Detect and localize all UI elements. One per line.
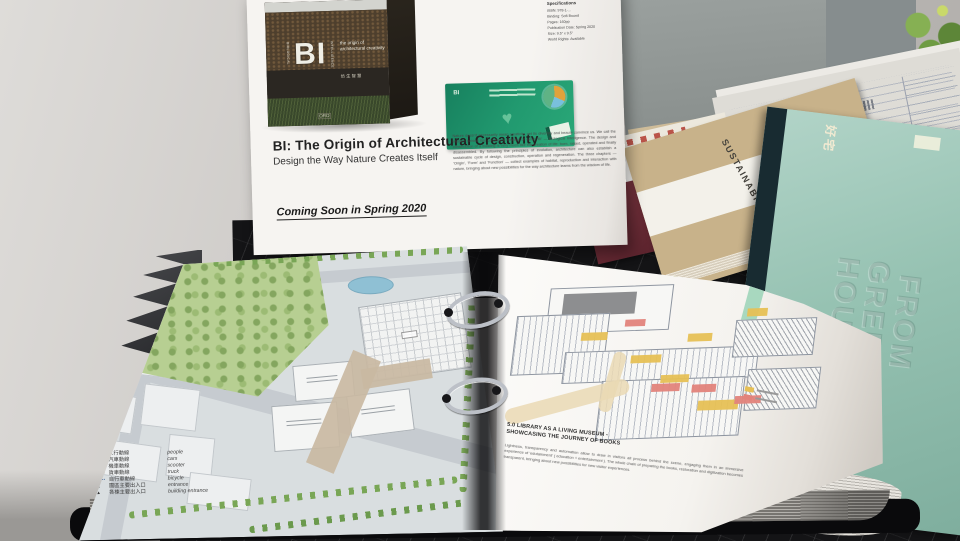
route-red (691, 384, 716, 393)
route-yellow (687, 333, 712, 342)
book-3d-mockup: BIOLOGICAL BI INTELLIGENCE the origin of… (264, 0, 426, 133)
pie-diagram-icon (543, 85, 566, 108)
ring-mount (494, 299, 503, 308)
heart-leaf-icon: ♥ (500, 107, 514, 129)
specs-line: World Rights: Available (548, 35, 620, 43)
cover-monogram: BI (294, 37, 327, 72)
route-yellow (660, 374, 689, 383)
teal-cover-chip (913, 135, 940, 151)
route-line-people (91, 453, 104, 454)
north-arrow: N (91, 440, 100, 449)
route-yellow (697, 399, 739, 410)
yellow-swatch (745, 386, 755, 393)
route-line-cars (91, 459, 104, 460)
cover-series-right: INTELLIGENCE (330, 41, 334, 68)
specifications-block: Specifications ISBN: 978-1-… Binding: So… (547, 0, 620, 43)
cover-series-left: BIOLOGICAL (286, 42, 290, 65)
book-promo-card: BIOLOGICAL BI INTELLIGENCE the origin of… (246, 0, 627, 255)
route-line-scooter (92, 466, 105, 467)
legend-heading: 圖例 (103, 440, 114, 448)
pond (348, 276, 394, 295)
city-block (140, 383, 201, 431)
axon-block (732, 317, 818, 358)
route-yellow (581, 332, 608, 341)
infographic-text-lines (489, 88, 535, 97)
red-swatch (743, 393, 753, 400)
bi-logo: BI (453, 89, 459, 96)
city-block (71, 335, 122, 383)
book-cover-front: BIOLOGICAL BI INTELLIGENCE the origin of… (265, 0, 390, 127)
publisher-mark: ORO (318, 113, 331, 119)
specs-heading: Specifications (547, 0, 576, 6)
coming-soon-note: Coming Soon in Spring 2020 (276, 202, 426, 220)
cover-grass-band (267, 95, 390, 126)
route-yellow (630, 354, 661, 363)
poster-blurb: Nature doesn't necessarily mean creativi… (452, 129, 618, 221)
building-label-chip (401, 330, 418, 339)
street-trees (249, 499, 468, 534)
route-red (625, 319, 646, 327)
ring-mount (492, 386, 501, 395)
poster-subtitle: Design the Way Nature Creates Itself (273, 152, 438, 168)
teal-cjk-label: 好宅 (820, 124, 840, 154)
legend-label-line (755, 397, 777, 403)
city-block (80, 389, 137, 435)
ring-mount (442, 394, 451, 403)
cover-tagline: the origin of architectural creativity (340, 39, 390, 52)
ring-mount (444, 308, 453, 317)
photo-scene: SUSTAINABILITY FROM GREEN HOUSE 好宅 BIOLO… (0, 0, 960, 541)
route-red (651, 383, 680, 392)
book-cover-side (387, 0, 418, 119)
route-yellow (747, 308, 768, 317)
site-plan-legend: N 圖例 人行動線people 汽車動線cars 機車動線scooter 貨車動… (91, 436, 297, 496)
